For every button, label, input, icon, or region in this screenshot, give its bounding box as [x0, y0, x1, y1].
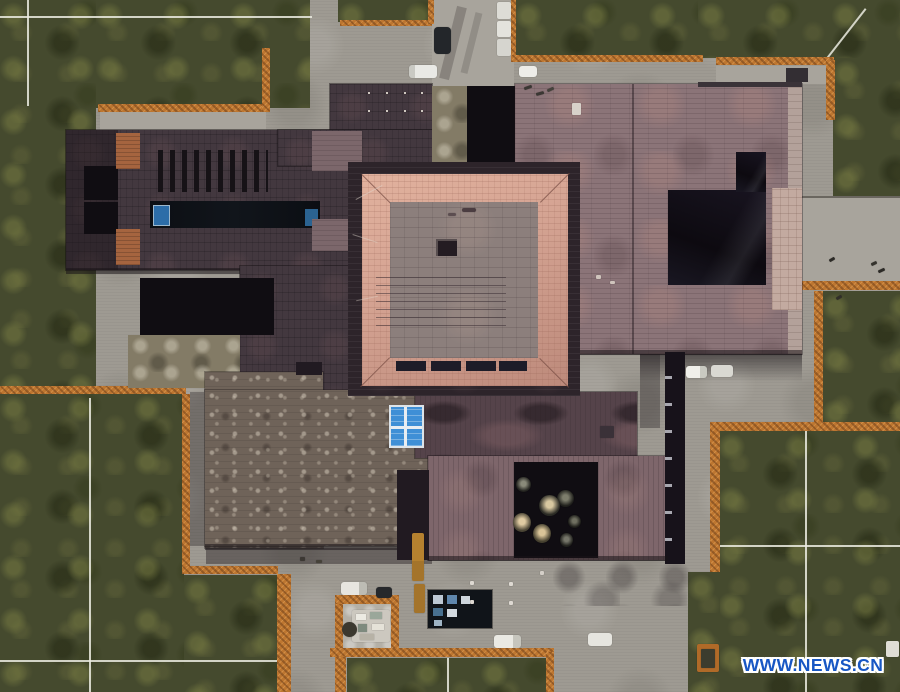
tree-canopy — [539, 495, 560, 516]
pedestrian-mark — [524, 85, 533, 91]
truck-orange-2 — [414, 584, 425, 613]
rivet-dot — [386, 110, 388, 112]
pedestrian-mark — [536, 91, 545, 96]
roof-mark — [540, 571, 544, 575]
car-white-southwest — [341, 582, 367, 595]
van-white-north — [409, 65, 437, 78]
planter-inner — [701, 649, 715, 668]
roof-smudge — [462, 208, 476, 212]
glass-cell — [447, 595, 457, 604]
glass-cell — [434, 620, 442, 626]
scene-objects-layer — [0, 0, 900, 692]
material-item — [358, 624, 367, 632]
tree-canopy — [516, 477, 531, 492]
truck-orange-1 — [412, 533, 424, 581]
car-dark-southwest — [376, 587, 392, 598]
roof-mark — [470, 600, 474, 604]
car-dark-north — [434, 27, 451, 54]
roof-mark — [470, 581, 474, 585]
pedestrian-mark — [829, 257, 836, 263]
material-item — [360, 634, 374, 640]
car-white-east-2 — [711, 365, 733, 377]
roof-smudge — [448, 213, 456, 216]
truck-white-north-2 — [497, 21, 511, 37]
rivet-dot — [386, 92, 388, 94]
tree-canopy — [568, 515, 581, 528]
material-item — [356, 614, 366, 620]
material-item — [370, 612, 382, 619]
roof-mark — [509, 601, 513, 605]
van-white-south-2 — [588, 633, 612, 646]
pedestrian-mark — [836, 295, 843, 301]
glass-cell — [461, 596, 470, 604]
roof-mark — [596, 275, 601, 279]
pedestrian-mark — [871, 261, 878, 266]
aerial-photo-canvas: WWW.NEWS.CN — [0, 0, 900, 692]
rubble-mark — [316, 560, 322, 563]
rivet-dot — [404, 92, 406, 94]
car-white-east-1 — [686, 366, 707, 378]
tree-canopy — [513, 513, 531, 532]
glass-cell — [433, 608, 443, 616]
rubble-mark — [300, 557, 305, 561]
tree-canopy — [533, 524, 551, 543]
roof-vent-dark — [600, 426, 614, 438]
rivet-dot — [368, 110, 370, 112]
rivet-dot — [404, 110, 406, 112]
rivet-dot — [421, 92, 423, 94]
van-white-south-1 — [494, 635, 521, 648]
barrel-dark — [342, 622, 357, 637]
news-watermark: WWW.NEWS.CN — [727, 654, 899, 677]
car-white-north — [519, 66, 537, 77]
truck-white-north-1 — [497, 2, 511, 19]
pedestrian-mark — [547, 87, 555, 93]
roof-mark — [610, 281, 615, 284]
rivet-dot — [421, 110, 423, 112]
glass-cell — [433, 595, 443, 604]
material-item — [372, 624, 384, 630]
glass-cell — [447, 609, 457, 617]
tree-canopy — [560, 533, 573, 547]
roof-vent-box — [572, 103, 581, 115]
rivet-dot — [368, 92, 370, 94]
roof-mark — [509, 582, 513, 586]
pedestrian-mark — [878, 268, 886, 274]
truck-white-north-3 — [497, 39, 511, 56]
